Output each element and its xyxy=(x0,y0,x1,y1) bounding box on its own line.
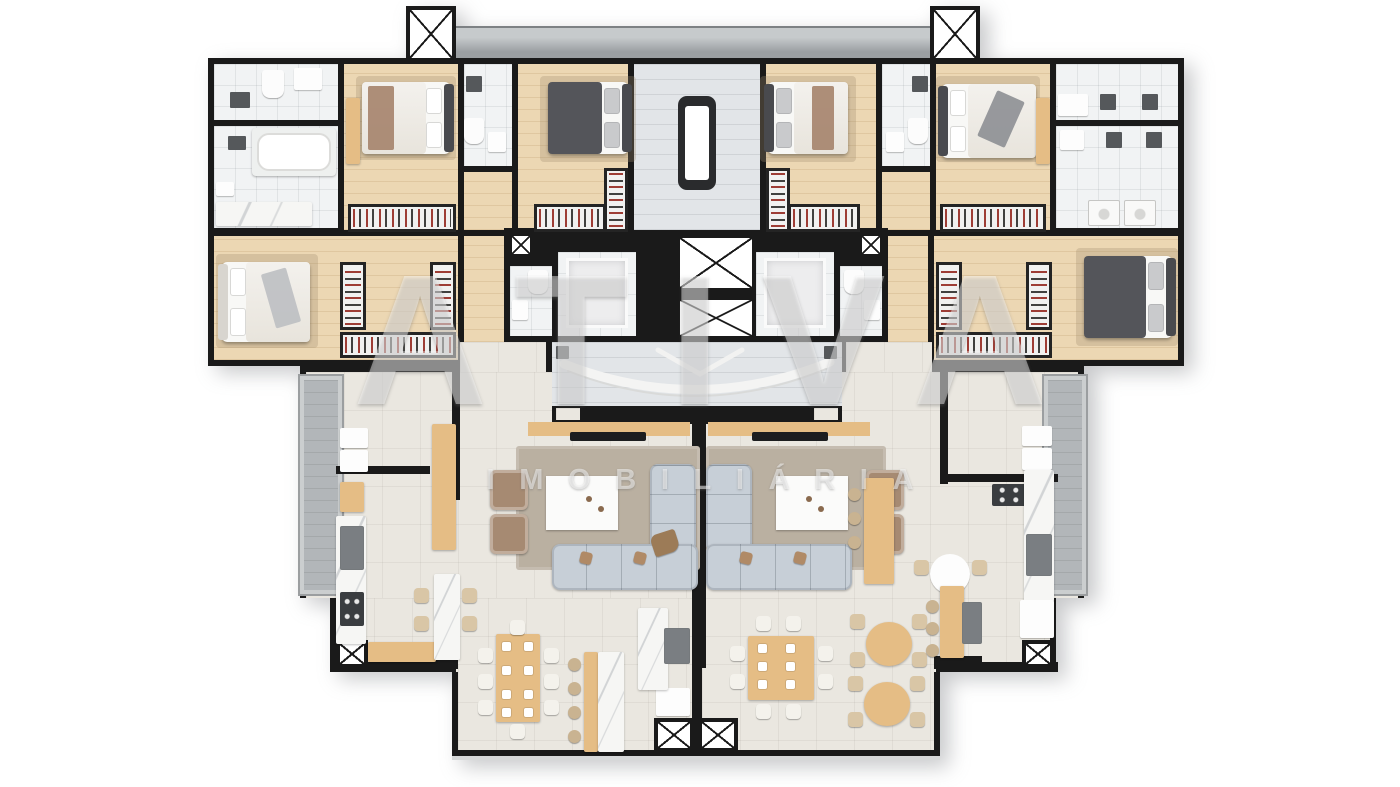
room-hall-right xyxy=(882,172,930,230)
double-bed xyxy=(768,82,848,154)
chair xyxy=(914,560,929,575)
window-icon xyxy=(912,76,928,92)
chair xyxy=(756,704,771,719)
floor-plan-canvas: ATIVA IMOBILIÁRIA xyxy=(0,0,1400,787)
round-table xyxy=(866,622,912,666)
chair xyxy=(848,676,863,691)
sectional-sofa xyxy=(706,544,852,590)
plate xyxy=(786,680,795,689)
chair xyxy=(850,652,865,667)
plate xyxy=(524,666,533,675)
chair xyxy=(730,646,745,661)
watermark-subtitle: IMOBILIÁRIA xyxy=(0,466,1400,495)
bar-stool xyxy=(568,682,581,695)
bar-stool xyxy=(568,706,581,719)
utility-shaft-icon xyxy=(698,718,738,752)
plate xyxy=(502,690,511,699)
table-decor xyxy=(586,496,592,502)
plate xyxy=(758,644,767,653)
window-icon xyxy=(230,92,250,108)
toilet-icon xyxy=(464,118,484,144)
double-bed xyxy=(942,84,1036,158)
appliance xyxy=(962,602,982,644)
kitchen-counter-wood xyxy=(368,642,436,662)
service-niche xyxy=(1020,600,1054,638)
chair xyxy=(510,620,525,635)
chair xyxy=(478,648,493,663)
clothes-rack xyxy=(940,204,1046,232)
stove-icon xyxy=(340,592,364,626)
plate xyxy=(758,680,767,689)
plate xyxy=(758,662,767,671)
bar-stool xyxy=(848,536,861,549)
bar-stool xyxy=(926,622,939,635)
utility-shaft-icon xyxy=(654,718,694,752)
chair xyxy=(850,614,865,629)
counter-wood xyxy=(940,586,964,658)
toilet-icon xyxy=(262,70,284,98)
chair xyxy=(462,616,477,631)
wardrobe xyxy=(1036,98,1050,164)
fridge-icon xyxy=(664,628,690,664)
plate xyxy=(524,642,533,651)
chair xyxy=(848,712,863,727)
chair xyxy=(818,674,833,689)
table-decor xyxy=(806,496,812,502)
chair xyxy=(912,614,927,629)
sink-icon xyxy=(886,132,904,152)
window-icon xyxy=(1142,94,1158,110)
bar-counter-wood xyxy=(584,652,598,752)
chair xyxy=(544,648,559,663)
chair xyxy=(756,616,771,631)
double-bed-dark xyxy=(548,82,628,154)
table-decor xyxy=(598,506,604,512)
roof-slab xyxy=(452,26,934,62)
terrace-edge-shadow xyxy=(452,756,940,760)
chair xyxy=(478,674,493,689)
utility-shaft-icon xyxy=(406,6,456,62)
plate xyxy=(502,666,511,675)
laundry-sink xyxy=(1060,130,1084,150)
chair xyxy=(818,646,833,661)
fridge-icon xyxy=(1026,534,1052,576)
chair xyxy=(414,588,429,603)
clothes-rack xyxy=(348,204,456,232)
clothes-rack xyxy=(788,204,860,232)
plate xyxy=(524,708,533,717)
chair xyxy=(510,724,525,739)
bar-stool xyxy=(568,658,581,671)
bar-stool xyxy=(848,512,861,525)
wardrobe xyxy=(346,98,360,164)
plate xyxy=(502,642,511,651)
utility-shaft-icon xyxy=(930,6,980,62)
laundry-sink xyxy=(1058,94,1088,116)
fridge-icon xyxy=(340,526,364,570)
chair xyxy=(478,700,493,715)
chair xyxy=(910,676,925,691)
chair xyxy=(544,700,559,715)
window-icon xyxy=(466,76,482,92)
round-table xyxy=(864,682,910,726)
chair xyxy=(786,616,801,631)
stair-flight xyxy=(678,96,716,190)
armchair xyxy=(490,514,528,554)
washer-icon xyxy=(1124,200,1156,226)
bar-counter xyxy=(598,652,624,752)
plate xyxy=(786,662,795,671)
washer-icon xyxy=(1088,200,1120,226)
clothes-rack xyxy=(534,204,606,232)
bar-stool xyxy=(926,644,939,657)
chair xyxy=(910,712,925,727)
bar-stool xyxy=(568,730,581,743)
plate xyxy=(786,644,795,653)
room-hall-left xyxy=(464,172,512,230)
table-decor xyxy=(818,506,824,512)
kitchen-island xyxy=(434,574,460,660)
bar-stool xyxy=(926,600,939,613)
service-niche xyxy=(656,688,690,716)
utility-shaft-icon xyxy=(336,640,368,668)
vanity-counter xyxy=(216,202,312,226)
clothes-rack xyxy=(766,168,790,232)
window-icon xyxy=(1100,94,1116,110)
plate xyxy=(502,708,511,717)
clothes-rack xyxy=(604,168,628,232)
utility-shaft-icon xyxy=(1022,640,1054,668)
double-bed xyxy=(362,82,450,154)
chair xyxy=(544,674,559,689)
window-icon xyxy=(228,136,246,150)
window-icon xyxy=(1106,132,1122,148)
chair xyxy=(414,616,429,631)
sectional-sofa xyxy=(552,544,698,590)
window-icon xyxy=(1146,132,1162,148)
chair xyxy=(462,588,477,603)
bathtub-icon xyxy=(252,128,336,176)
plate xyxy=(524,690,533,699)
toilet-icon xyxy=(908,118,928,144)
chair xyxy=(786,704,801,719)
chair xyxy=(972,560,987,575)
sink-icon xyxy=(488,132,506,152)
sink-icon xyxy=(294,68,322,90)
chair xyxy=(912,652,927,667)
shelf xyxy=(216,182,234,196)
watermark-brand: ATIVA xyxy=(0,248,1400,434)
chair xyxy=(730,674,745,689)
